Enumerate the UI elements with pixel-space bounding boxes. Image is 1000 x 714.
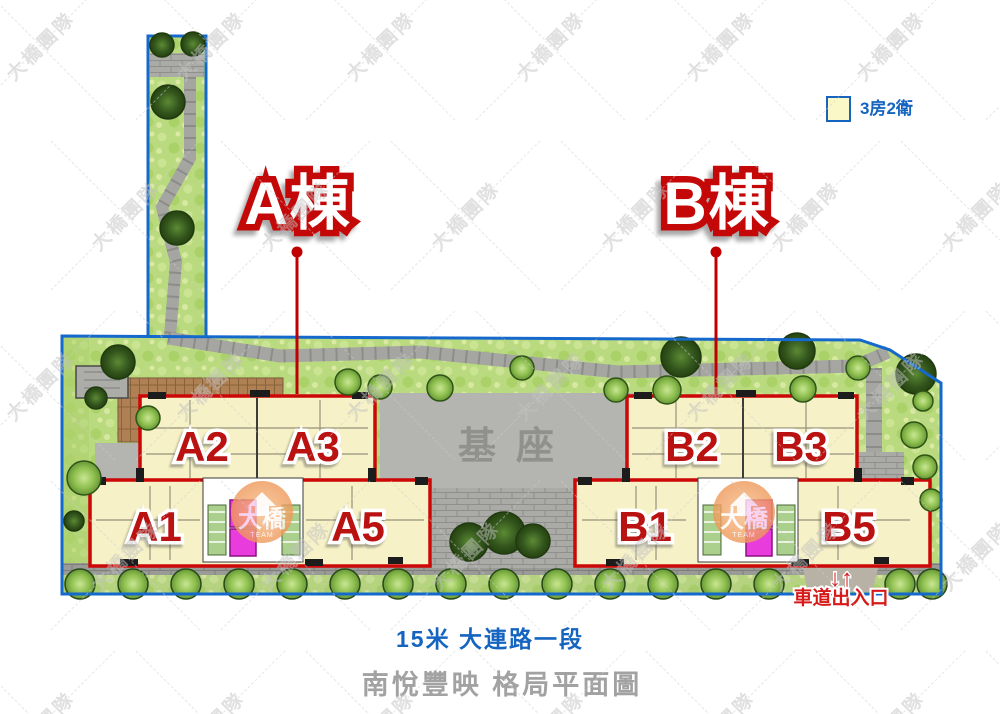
- building-b-title: B棟: [663, 170, 770, 237]
- tree: [896, 354, 936, 394]
- balcony-mark: [250, 390, 270, 397]
- site-plan-page: 大橋 TEAM 大橋 TEAM: [0, 0, 1000, 714]
- balcony-mark: [388, 557, 403, 564]
- balcony-mark: [838, 392, 854, 399]
- tree: [335, 369, 361, 395]
- building-a-title: A棟: [244, 170, 351, 237]
- balcony-mark: [622, 468, 630, 482]
- unit-label-a2: A2: [175, 423, 229, 470]
- tree: [901, 422, 927, 448]
- podium-base-east: [570, 395, 632, 480]
- unit-label-b3: B3: [774, 423, 828, 470]
- balcony-mark: [578, 477, 592, 485]
- tree: [150, 33, 174, 57]
- balcony-mark: [368, 468, 376, 482]
- balcony-mark: [874, 557, 889, 564]
- balcony-mark: [415, 477, 428, 485]
- page-title: 南悅豐映 格局平面圖: [0, 663, 1000, 702]
- legend-swatch-3b2b: [826, 96, 851, 122]
- tree: [846, 356, 870, 380]
- tree: [661, 337, 701, 377]
- balcony-mark: [120, 559, 138, 566]
- unit-label-b5: B5: [822, 503, 876, 550]
- unit-label-a1: A1: [128, 503, 182, 550]
- balcony-mark: [136, 468, 144, 482]
- tree: [368, 375, 392, 399]
- tree: [64, 511, 84, 531]
- balcony-mark: [736, 390, 756, 397]
- tree: [151, 85, 185, 119]
- driveway-label: 車道出入口: [793, 586, 888, 609]
- tree: [913, 391, 933, 411]
- tree: [790, 376, 816, 402]
- road-label: 15米 大連路一段: [0, 620, 980, 654]
- tree: [427, 375, 453, 401]
- tree: [136, 406, 160, 430]
- unit-label-b2: B2: [665, 423, 719, 470]
- legend-label: 3房2衛: [860, 96, 913, 122]
- tree: [160, 211, 194, 245]
- tree: [67, 461, 101, 495]
- tree: [913, 455, 937, 479]
- tree: [920, 489, 942, 511]
- balcony-mark: [634, 392, 652, 399]
- tree: [604, 378, 628, 402]
- balcony-mark: [854, 468, 862, 482]
- logo-text: 大橋: [720, 506, 769, 533]
- unit-label-a5: A5: [331, 503, 385, 550]
- unit-label-b1: B1: [618, 503, 672, 550]
- logo-subtext: TEAM: [732, 532, 755, 539]
- balcony-mark: [901, 477, 914, 485]
- tree: [653, 376, 681, 404]
- team-logo-watermark-a: 大橋 TEAM: [231, 481, 293, 543]
- landscape-strip: [148, 36, 206, 337]
- tree: [516, 524, 550, 558]
- tree: [450, 523, 488, 561]
- balcony-mark: [606, 559, 624, 566]
- tree: [510, 356, 534, 380]
- balcony-mark: [305, 559, 323, 566]
- unit-label-a3: A3: [286, 423, 340, 470]
- tree: [101, 345, 135, 379]
- tree: [85, 387, 107, 409]
- logo-text: 大橋: [238, 506, 287, 533]
- podium-label: 基座: [458, 426, 574, 468]
- legend: 3房2衛: [826, 96, 913, 122]
- tree: [181, 32, 205, 56]
- logo-subtext: TEAM: [250, 532, 273, 539]
- balcony-mark: [148, 392, 166, 399]
- team-logo-watermark-b: 大橋 TEAM: [713, 481, 775, 543]
